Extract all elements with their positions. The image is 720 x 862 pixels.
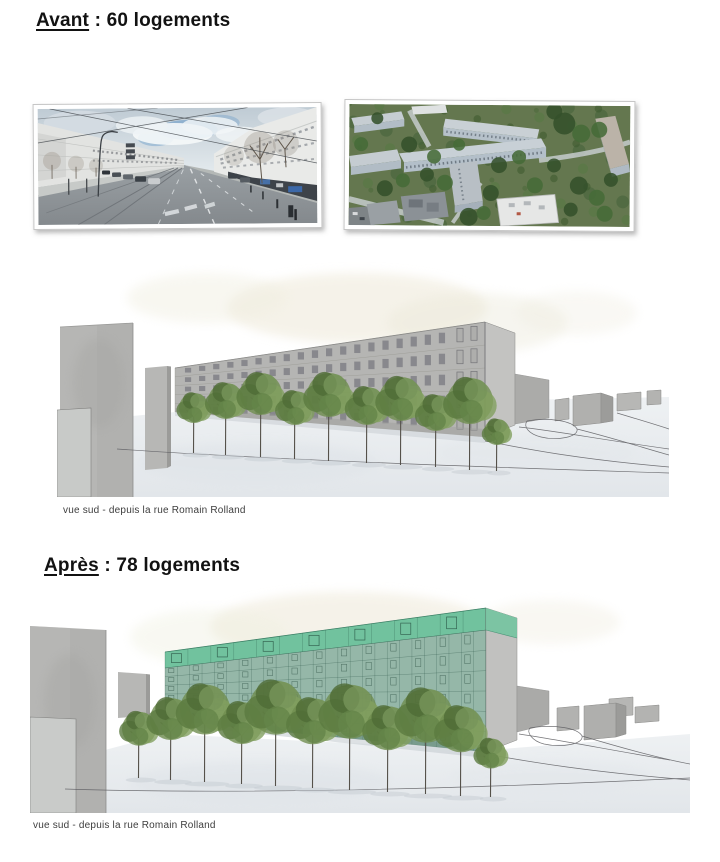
section-title-after: Après : 78 logements [44,555,240,577]
title-rest-after: : 78 logements [99,555,240,576]
render-after [30,582,690,813]
title-rest-before: : 60 logements [89,10,230,31]
title-keyword-after: Après [44,555,99,576]
render-caption-after: vue sud - depuis la rue Romain Rolland [33,820,216,831]
render-before [57,253,669,497]
title-keyword-before: Avant [36,10,89,31]
section-title-before: Avant : 60 logements [36,10,230,32]
render-after-illustration [30,582,690,813]
street-view-illustration [38,107,318,225]
street-view-photo [33,102,323,230]
render-before-illustration [57,253,669,497]
aerial-view-photo [344,99,636,232]
small-buildings [557,697,659,740]
aerial-view-illustration [349,104,631,227]
render-caption-before: vue sud - depuis la rue Romain Rolland [63,505,246,516]
